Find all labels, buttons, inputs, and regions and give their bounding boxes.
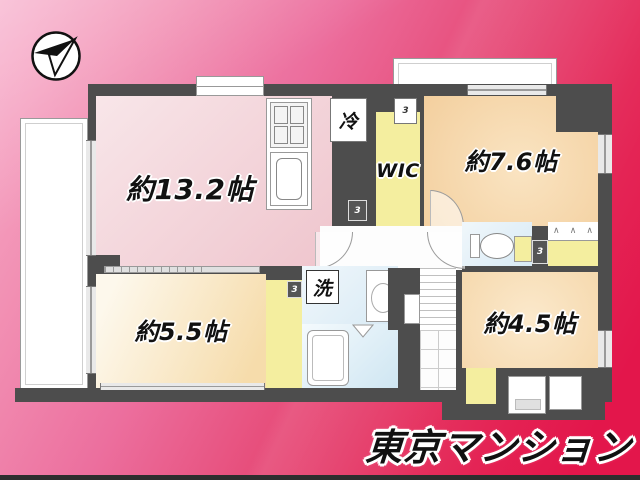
meter-box — [515, 399, 541, 410]
window-top-76 — [467, 85, 547, 95]
bedroom-45-label: 約4.5帖 — [462, 304, 598, 338]
balcony-left — [20, 118, 88, 390]
burner-icon — [274, 106, 288, 124]
burner-icon — [274, 126, 288, 144]
window-sash-line — [197, 86, 263, 87]
stove-icon — [270, 102, 308, 148]
water-heater — [404, 294, 420, 324]
door-marker: 3 — [348, 200, 367, 221]
sliding-door — [104, 266, 260, 273]
laundry-label: 洗 — [306, 272, 339, 302]
toilet-tank — [470, 234, 480, 258]
utility-shaft — [549, 376, 582, 410]
door-marker: 3 — [532, 240, 548, 264]
bathtub-inner — [312, 335, 344, 381]
kitchen-sink-icon — [270, 152, 308, 206]
bottom-edge-bar — [0, 475, 640, 480]
door-marker: 3 — [287, 281, 302, 298]
window-bottom-55 — [100, 383, 265, 390]
window-left-ldk — [86, 140, 96, 256]
refrigerator-label: 冷 — [330, 104, 367, 136]
closet-right — [548, 240, 598, 266]
window-right-45 — [598, 330, 612, 368]
entrance-tiles — [420, 330, 456, 390]
closet-hanger-strip: ∧ ∧ ∧ — [548, 222, 598, 240]
north-compass-icon — [30, 30, 82, 82]
door-marker: 3 — [394, 98, 417, 124]
corner-wall-block — [556, 84, 612, 132]
closet-bedroom-45 — [466, 368, 496, 404]
hanger-icon: ∧ — [553, 227, 560, 236]
utility-shaft — [508, 376, 546, 414]
ldk-label: 約13.2帖 — [105, 168, 275, 208]
bedroom-76-label: 約7.6帖 — [424, 142, 598, 176]
hanger-icon: ∧ — [586, 227, 593, 236]
balcony-left-rail — [25, 123, 83, 385]
bathtub-icon — [307, 330, 349, 386]
window-left-55 — [86, 286, 96, 374]
bedroom-55-label: 約5.5帖 — [96, 312, 266, 346]
burner-icon — [290, 106, 304, 124]
bottom-wall-extension — [15, 388, 90, 402]
entrance-steps — [420, 268, 456, 330]
bath-folding-door-icon — [352, 324, 374, 338]
balcony-top-rail — [398, 63, 552, 85]
toilet-bowl-icon — [480, 233, 514, 259]
window-top-ldk — [196, 76, 264, 96]
sink-basin — [276, 158, 302, 200]
company-logo: 東京マンション — [364, 417, 634, 471]
wic-label: WIC — [366, 158, 430, 184]
toilet-cabinet — [514, 236, 532, 262]
window-right-76 — [598, 134, 612, 174]
hanger-icon: ∧ — [570, 227, 577, 236]
burner-icon — [290, 126, 304, 144]
